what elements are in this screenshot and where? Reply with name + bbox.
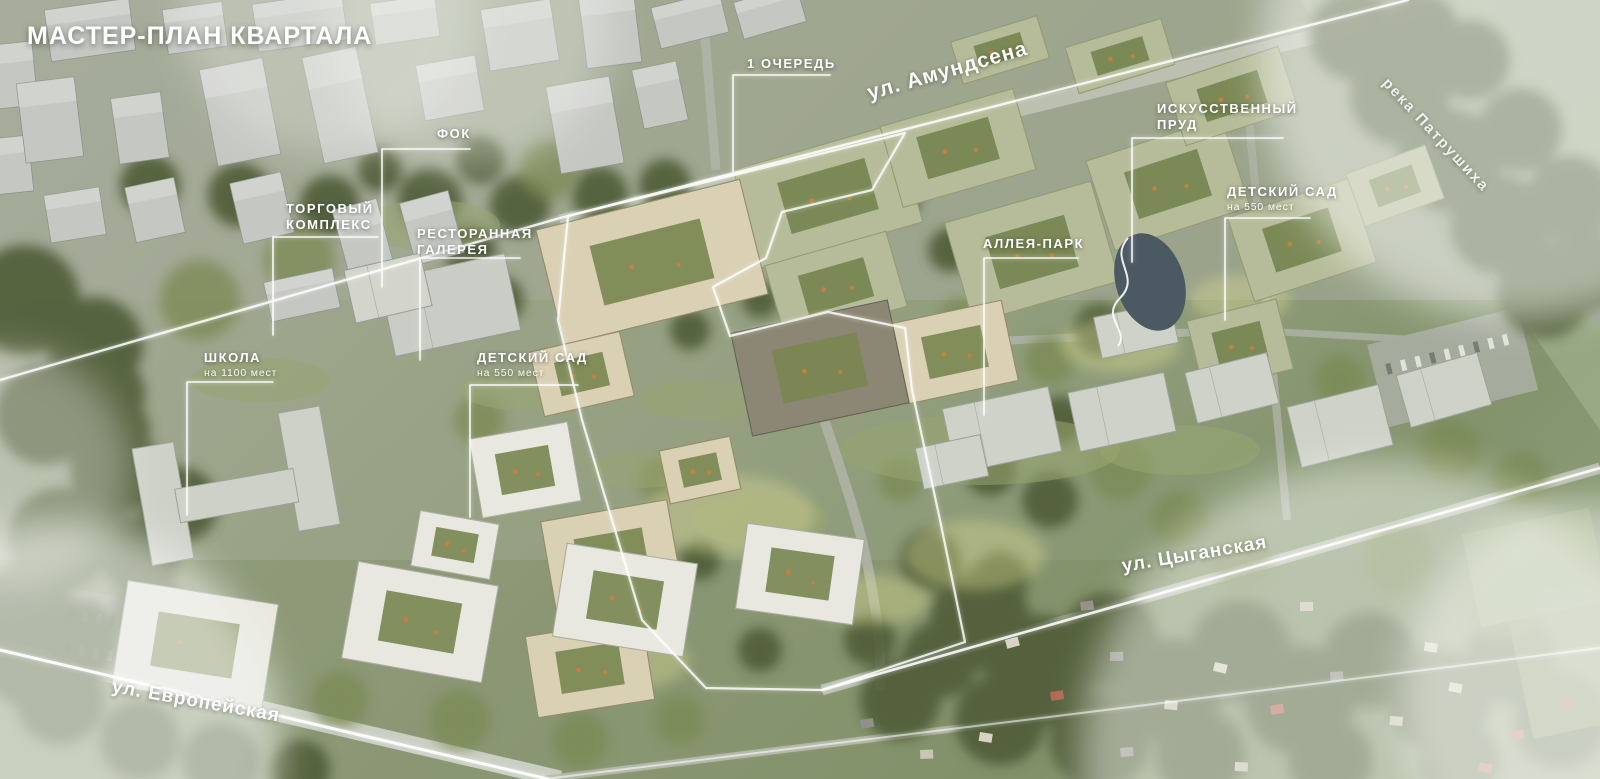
village-road-line: [545, 648, 1600, 779]
phase1-outline: [558, 133, 965, 690]
quarter-boundary-line: [0, 0, 1408, 380]
annotation-linework: [0, 0, 1600, 779]
leader-phase1: [733, 75, 830, 172]
leader-school: [187, 382, 273, 515]
leader-restaurant: [420, 258, 520, 360]
masterplan-slide: МАСТЕР-ПЛАН КВАРТАЛА 1 ОЧЕРЕДЬ ФОК ТОРГО…: [0, 0, 1600, 779]
road-evropeyskaya-line: [0, 650, 548, 779]
leader-kindergarten-east: [1225, 218, 1310, 320]
leader-pond: [1132, 138, 1283, 262]
leader-kindergarten-central: [470, 385, 578, 517]
road-tsyganskaya-line: [822, 468, 1600, 690]
leader-alley-park: [984, 258, 1078, 415]
